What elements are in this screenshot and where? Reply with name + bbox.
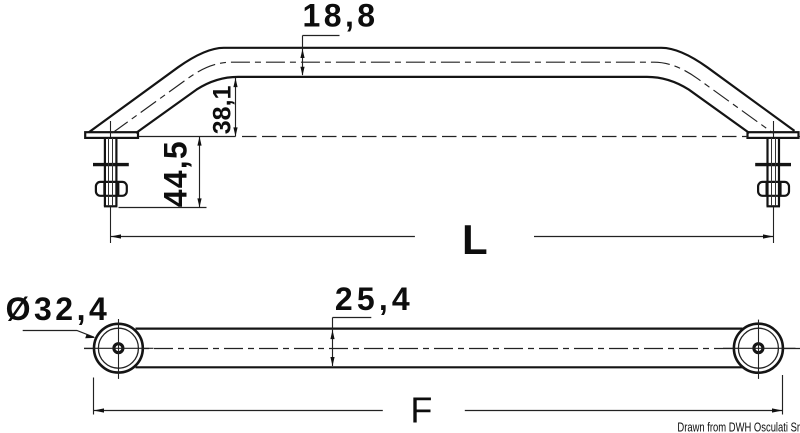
svg-text:44,5: 44,5: [158, 140, 194, 207]
svg-text:Ø32,4: Ø32,4: [6, 291, 111, 327]
svg-text:F: F: [410, 390, 432, 431]
svg-text:25,4: 25,4: [335, 281, 414, 317]
svg-text:38,1: 38,1: [208, 85, 236, 134]
svg-text:Drawn from DWH Osculati Srl: Drawn from DWH Osculati Srl: [677, 421, 800, 433]
svg-text:L: L: [462, 216, 488, 263]
svg-text:18,8: 18,8: [303, 0, 379, 33]
